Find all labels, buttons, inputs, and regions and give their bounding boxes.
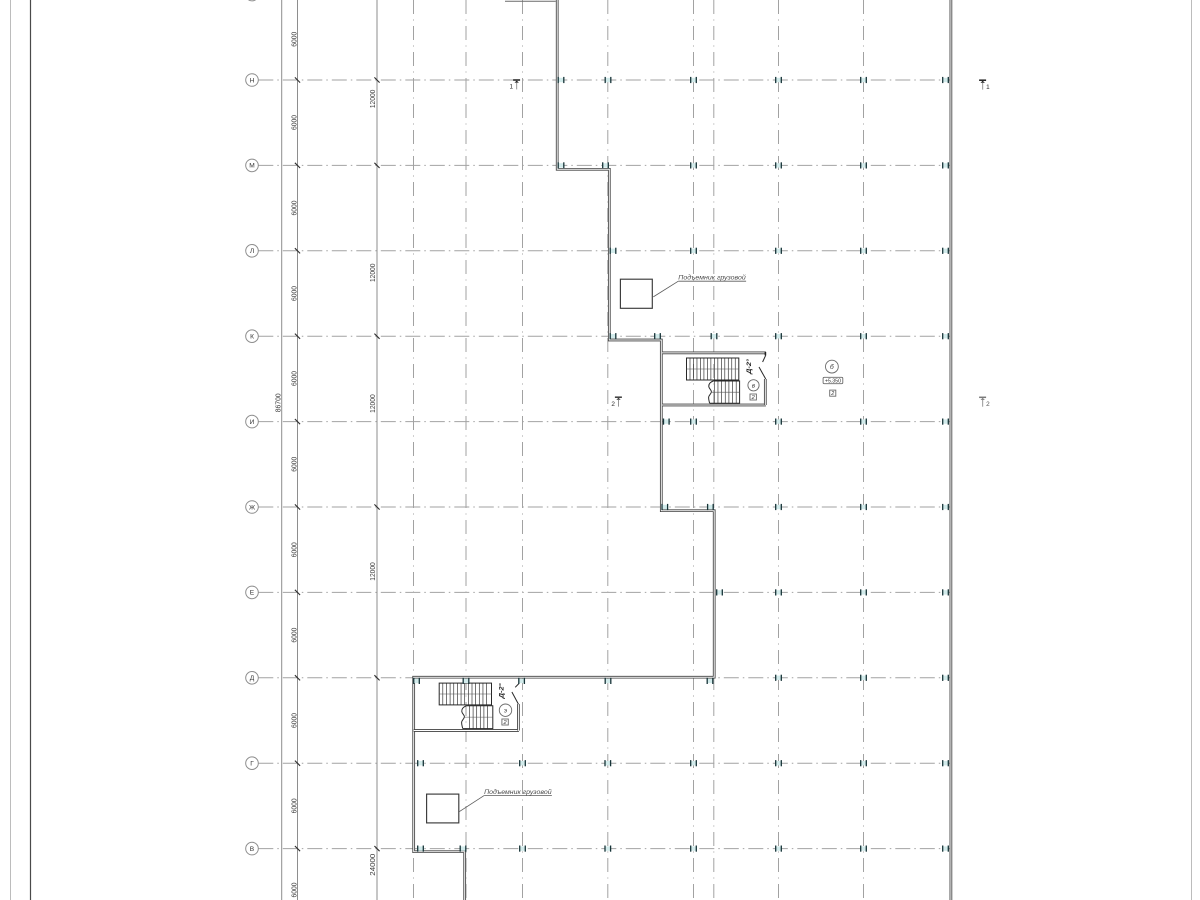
svg-text:в: в (752, 384, 755, 390)
svg-text:12000: 12000 (368, 90, 377, 109)
svg-text:12000: 12000 (368, 394, 377, 413)
svg-text:12000: 12000 (368, 264, 377, 283)
svg-text:6000: 6000 (290, 457, 299, 472)
svg-text:6000: 6000 (290, 713, 299, 728)
svg-text:Д: Д (250, 675, 255, 682)
svg-text:6000: 6000 (290, 542, 299, 557)
svg-text:Л: Л (250, 248, 254, 255)
svg-text:86700: 86700 (273, 393, 282, 412)
svg-text:М: М (249, 163, 255, 170)
svg-text:2: 2 (830, 391, 834, 397)
svg-text:Подъемник грузовой: Подъемник грузовой (678, 274, 746, 282)
svg-text:Е: Е (250, 590, 255, 597)
svg-text:2: 2 (986, 401, 990, 408)
svg-text:6000: 6000 (290, 115, 299, 130)
svg-text:6000: 6000 (290, 628, 299, 643)
svg-text:Подъемник грузовой: Подъемник грузовой (484, 788, 552, 796)
svg-text:Д-2°: Д-2° (498, 683, 506, 700)
svg-text:6000: 6000 (290, 286, 299, 301)
svg-text:Г: Г (250, 761, 254, 768)
svg-text:2: 2 (611, 401, 615, 408)
svg-text:24000: 24000 (368, 854, 377, 876)
svg-text:6000: 6000 (290, 798, 299, 813)
svg-text:6000: 6000 (290, 883, 299, 898)
svg-text:6000: 6000 (290, 371, 299, 386)
svg-text:К: К (250, 334, 254, 341)
svg-text:Н: Н (250, 77, 255, 84)
svg-text:В: В (250, 846, 255, 853)
svg-text:э: э (504, 708, 507, 714)
svg-text:+5.350: +5.350 (825, 378, 841, 384)
svg-text:1: 1 (986, 84, 990, 91)
svg-text:Д-2°: Д-2° (745, 358, 753, 375)
svg-text:б: б (830, 363, 834, 371)
svg-text:6000: 6000 (290, 201, 299, 216)
svg-text:И: И (250, 419, 255, 426)
svg-text:12000: 12000 (368, 562, 377, 581)
svg-text:1: 1 (510, 84, 514, 91)
svg-text:Ж: Ж (249, 504, 255, 511)
svg-text:6000: 6000 (290, 32, 299, 47)
